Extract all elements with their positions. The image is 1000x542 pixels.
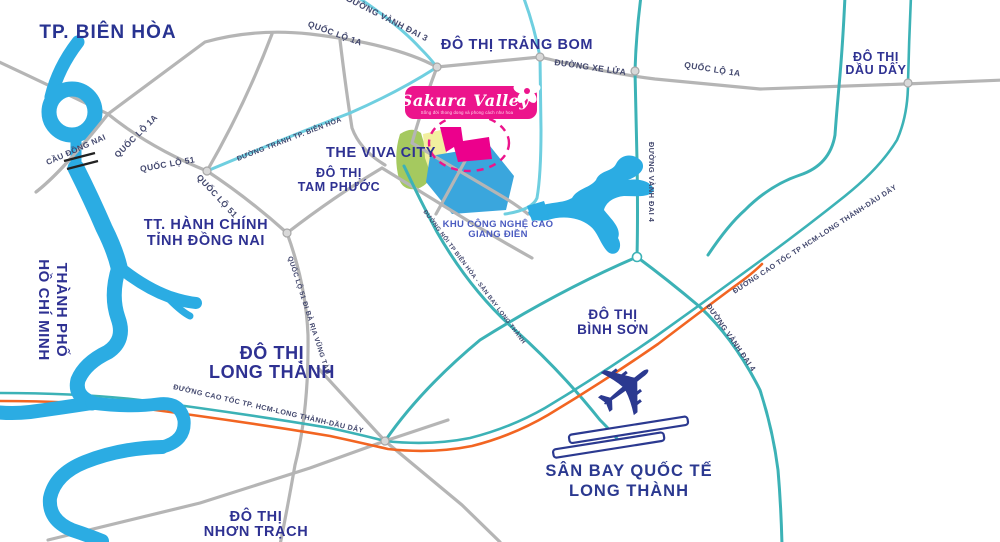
logo-tagline: Sống đời thong dong và phong cách như ho… <box>421 110 514 115</box>
dong-nai-river <box>0 42 196 541</box>
road-label-vanh-dai-4-s: ĐƯỜNG VÀNH ĐAI 4 <box>704 302 758 373</box>
label-nhon-trach-1: ĐÔ THỊ <box>230 507 283 525</box>
label-tam-phuoc-2: TAM PHƯỚC <box>298 179 380 194</box>
label-viva-city: THE VIVA CITY <box>326 145 436 161</box>
label-giang-dien-2: GIANG ĐIỀN <box>468 229 527 240</box>
label-long-thanh-1: ĐÔ THỊ <box>240 342 305 363</box>
map-svg: ✈ Sakura Valley Sống đời thong dong và p… <box>0 0 1000 542</box>
road-label-ql1a-west: QUỐC LỘ 1A <box>112 112 160 160</box>
label-trang-bom: ĐÔ THỊ TRẢNG BOM <box>441 35 593 53</box>
logo-title: Sakura Valley <box>401 91 531 110</box>
road-vanh-dai-4-north <box>635 0 641 257</box>
label-long-thanh-2: LONG THÀNH <box>209 361 335 382</box>
road-ne-curve <box>708 0 845 255</box>
road-label-ql51-a: QUỐC LỘ 51 <box>139 153 196 173</box>
map-canvas: ✈ Sakura Valley Sống đời thong dong và p… <box>0 0 1000 542</box>
road-network <box>0 0 1000 542</box>
label-airport-1: SÂN BAY QUỐC TẾ <box>545 460 712 480</box>
label-hcmc-1: THÀNH PHỐ <box>53 263 71 358</box>
label-binh-son-2: BÌNH SƠN <box>577 322 649 337</box>
road-label-xe-lua: ĐƯỜNG XE LỬA <box>554 56 627 77</box>
sakura-valley-logo: Sakura Valley Sống đời thong dong và pho… <box>401 77 542 119</box>
long-thanh-airport: ✈ <box>551 334 691 458</box>
label-airport-2: LONG THÀNH <box>569 481 689 500</box>
label-binh-son-1: ĐÔ THỊ <box>588 307 637 322</box>
label-hcmc-2: HỒ CHÍ MINH <box>35 259 53 361</box>
label-hanh-chinh-2: TỈNH ĐỒNG NAI <box>147 231 265 249</box>
giang-dien-lake <box>528 156 654 254</box>
label-dau-day-2: DẦU DÂY <box>845 62 906 77</box>
road-vd4-sw-branch <box>385 257 637 441</box>
teal-roads <box>385 0 845 542</box>
label-hanh-chinh-1: TT. HÀNH CHÍNH <box>144 216 268 233</box>
label-tam-phuoc-1: ĐÔ THỊ <box>316 165 362 180</box>
label-dau-day-1: ĐÔ THỊ <box>853 49 899 64</box>
label-tp-bien-hoa: TP. BIÊN HÒA <box>39 21 176 43</box>
label-nhon-trach-2: NHƠN TRẠCH <box>204 524 309 540</box>
road-label-vanh-dai-4-n: ĐƯỜNG VÀNH ĐAI 4 <box>647 142 656 223</box>
road-label-ql1a-east: QUỐC LỘ 1A <box>684 59 742 79</box>
road-label-ql1a-top: QUỐC LỘ 1A <box>307 18 364 48</box>
